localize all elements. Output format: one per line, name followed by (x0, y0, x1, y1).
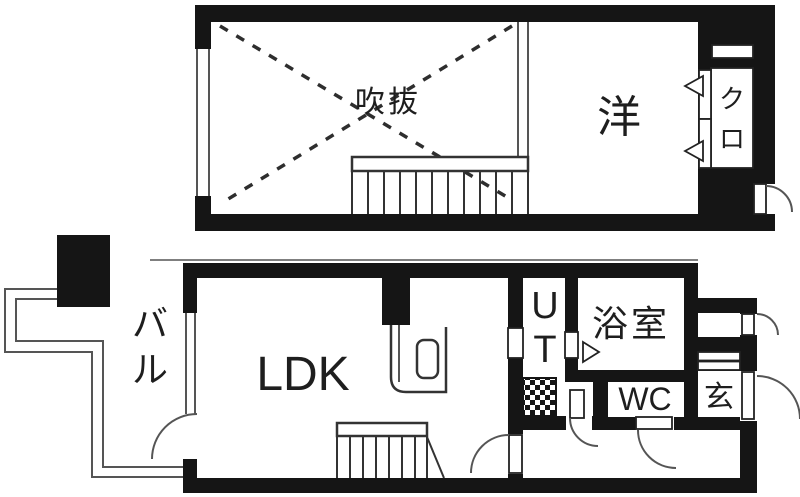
door-leaf-wc (636, 417, 672, 429)
wall-upper-bottom (195, 214, 775, 231)
wall-bath-right (684, 263, 698, 430)
wall-kitchen-stub (382, 278, 410, 325)
wall-lower-top (183, 263, 698, 278)
room-label-wc: WC (618, 381, 671, 417)
entrance-step-upper (698, 352, 740, 361)
room-label-balcony-char2: ル (132, 349, 168, 390)
wall-upper-top (195, 5, 775, 22)
wall-ut-bath (565, 278, 578, 375)
door-panel-ut-bath (565, 332, 578, 358)
entrance-step-lower (698, 362, 740, 371)
stair-rail-lower (337, 423, 427, 436)
door-opening-balcony (183, 414, 197, 459)
wall-upper-right (757, 5, 775, 214)
room-label-western: 洋 (597, 93, 641, 142)
room-label-bath: 浴室 (592, 303, 670, 344)
wall-under-entrance (684, 417, 743, 430)
room-label-void: 吹抜 (355, 86, 421, 119)
wall-upper-left-top (195, 5, 211, 49)
niche-interior (698, 313, 740, 337)
room-label-closet-char1: ク (719, 84, 745, 114)
door-panel-ldk-ut (508, 328, 523, 358)
wall-lower-bottom (183, 478, 757, 493)
door-leaf-hall (570, 390, 584, 418)
room-label-utility-char1: U (531, 285, 558, 327)
closet-shelf (712, 45, 753, 58)
room-label-utility-char2: T (533, 329, 556, 371)
balcony-pillar (57, 235, 110, 307)
stair-rail-upper (352, 157, 528, 171)
door-leaf-entrance (742, 372, 754, 419)
wall-wc-left (593, 382, 608, 430)
floorplan-image: 吹抜 洋 ク ロ (0, 0, 800, 497)
door-leaf-niche (742, 314, 754, 335)
door-leaf-ldk (509, 435, 522, 473)
door-leaf-upper (754, 184, 766, 214)
room-label-ldk: LDK (256, 348, 349, 401)
washer-pan (523, 378, 556, 416)
wall-lower-west-top (183, 263, 197, 313)
room-label-balcony-char1: バ (132, 303, 168, 344)
room-label-closet-char2: ロ (719, 124, 745, 154)
room-label-entrance: 玄 (704, 381, 734, 414)
wall-upper-left-bottom (195, 196, 211, 214)
floorplan-svg: 吹抜 洋 ク ロ (0, 0, 800, 497)
